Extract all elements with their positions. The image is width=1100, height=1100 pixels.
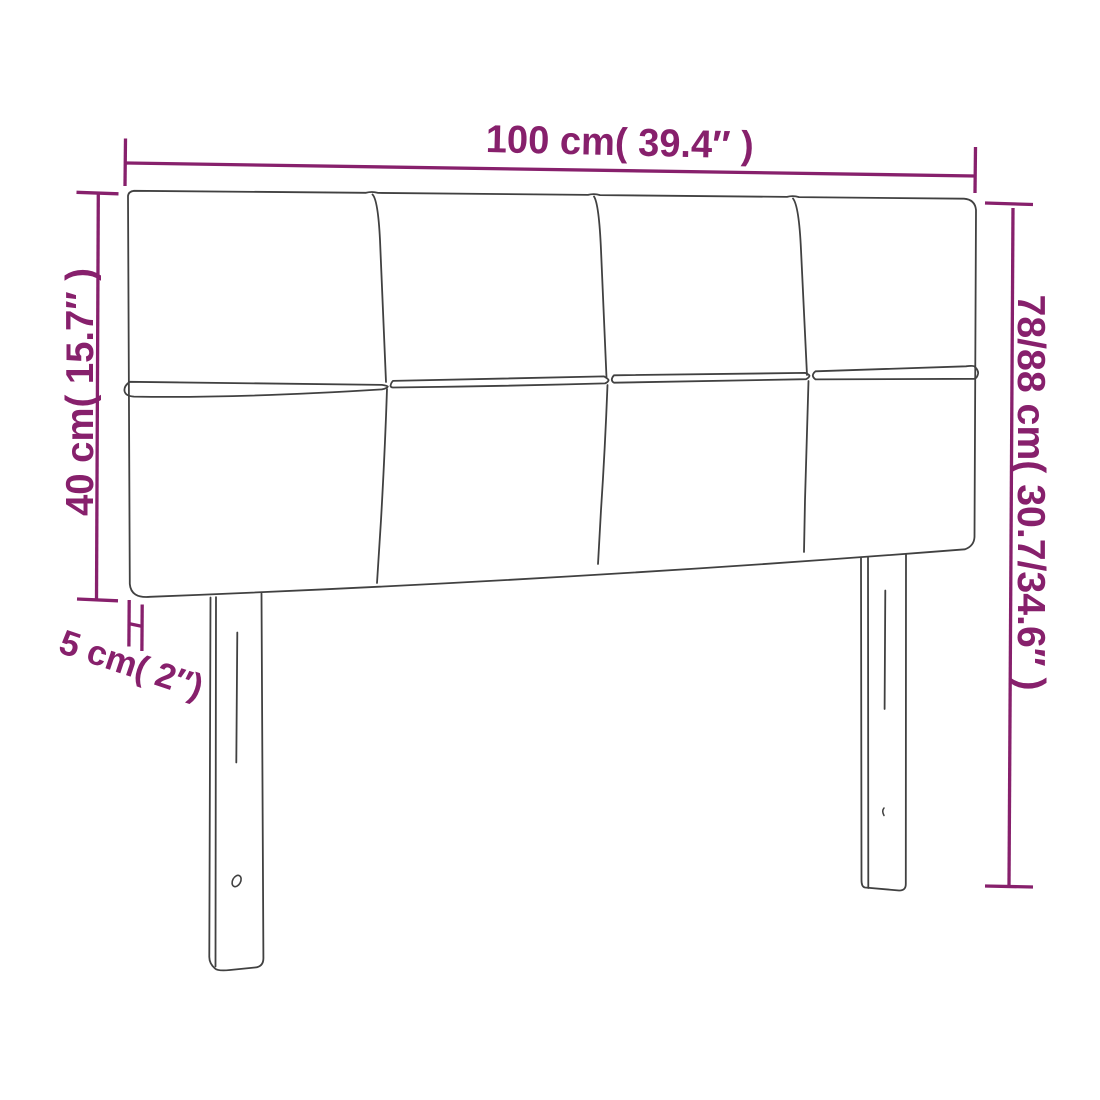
- svg-text:100 cm( 39.4″ ): 100 cm( 39.4″ ): [485, 118, 754, 168]
- svg-text:40 cm( 15.7″ ): 40 cm( 15.7″ ): [59, 268, 102, 516]
- svg-text:5 cm( 2″): 5 cm( 2″): [54, 623, 208, 707]
- svg-text:78/88 cm( 30.7/34.6″ ): 78/88 cm( 30.7/34.6″ ): [1009, 295, 1052, 691]
